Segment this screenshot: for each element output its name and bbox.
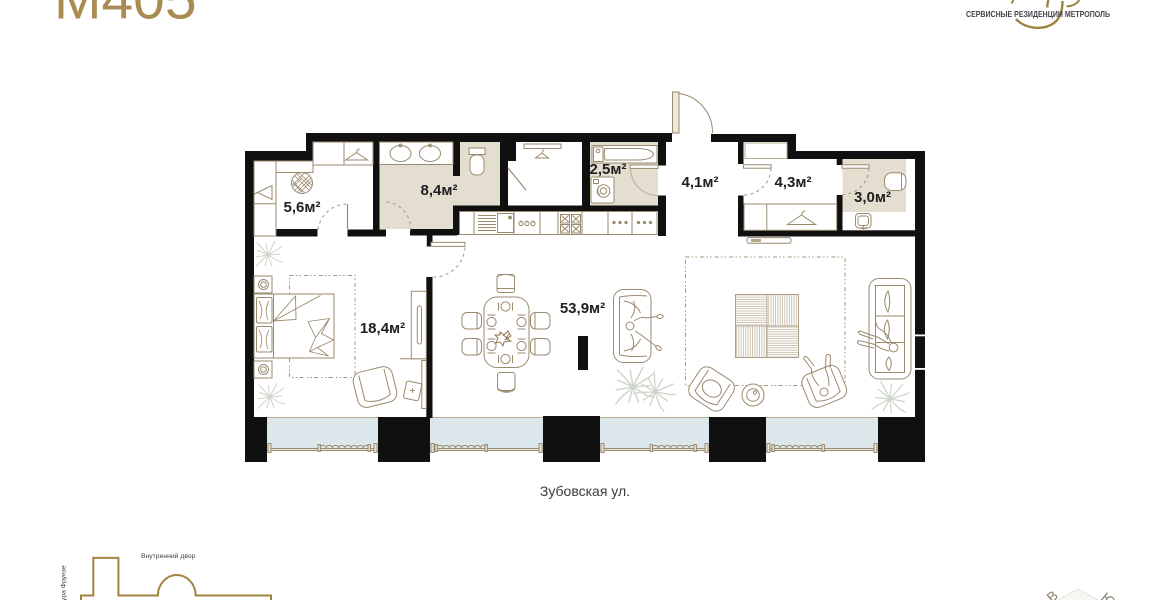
svg-text:18,4м²: 18,4м²	[360, 320, 405, 337]
svg-text:Внутренний двор: Внутренний двор	[141, 552, 196, 560]
svg-text:4,3м²: 4,3м²	[775, 174, 812, 191]
svg-text:Зубовская ул.: Зубовская ул.	[540, 483, 630, 499]
svg-text:3,0м²: 3,0м²	[854, 189, 891, 206]
svg-text:ура Фрунзе: ура Фрунзе	[61, 565, 68, 600]
svg-text:2,5м²: 2,5м²	[590, 161, 627, 178]
svg-text:4,1м²: 4,1м²	[682, 174, 719, 191]
svg-text:M405: M405	[54, 0, 197, 32]
svg-text:5,6м²: 5,6м²	[284, 199, 321, 216]
svg-text:53,9м²: 53,9м²	[560, 300, 605, 317]
svg-text:СЕРВИСНЫЕ РЕЗИДЕНЦИИ МЕТРОПОЛЬ: СЕРВИСНЫЕ РЕЗИДЕНЦИИ МЕТРОПОЛЬ	[966, 9, 1110, 19]
svg-text:8,4м²: 8,4м²	[421, 182, 458, 199]
